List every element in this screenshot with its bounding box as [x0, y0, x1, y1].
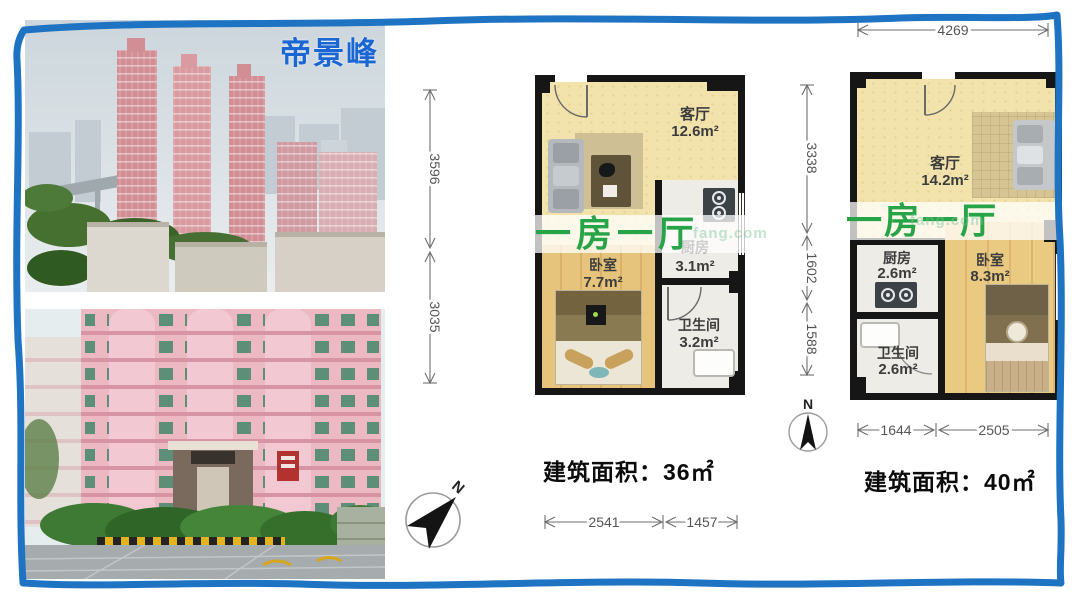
sofa [548, 139, 584, 213]
stove [875, 282, 917, 308]
dim-left-vertical: 3596 3035 [423, 90, 443, 383]
watermark: fang.com [910, 212, 985, 229]
bed [985, 284, 1049, 392]
dim-bottom-large: 1644 2505 [858, 422, 1048, 438]
room-label-living-name: 客厅 [905, 152, 985, 173]
street-photo [25, 309, 385, 579]
dim-3035: 3035 [427, 301, 443, 332]
room-label-bedroom-name: 卧室 [955, 250, 1025, 270]
room-label-kitchen-area: 2.6m² [862, 265, 932, 282]
project-title: 帝景峰 [280, 28, 379, 73]
dim-bottom-small: 2541 1457 [545, 514, 737, 530]
dim-2505: 2505 [978, 422, 1009, 438]
dim-1457: 1457 [686, 514, 717, 530]
north-label: N [803, 396, 813, 412]
living-window [1055, 114, 1062, 182]
watermark: fang.com [693, 225, 768, 242]
room-label-bath-name: 卫生间 [860, 343, 936, 363]
area-label-small: 建筑面积：36㎡ [543, 453, 715, 487]
room-label-living-name: 客厅 [655, 103, 735, 124]
wall-bottom [850, 393, 1062, 400]
compass-north: N [789, 396, 827, 451]
bedroom-window [1055, 254, 1062, 320]
room-label-bedroom-area: 7.7m² [567, 274, 639, 291]
dim-1644: 1644 [880, 422, 911, 438]
dim-4269: 4269 [937, 22, 968, 38]
aerial-photo: 帝景峰 [25, 20, 385, 292]
room-label-living-area: 14.2m² [905, 172, 985, 189]
sofa [1013, 120, 1055, 190]
floorplan-small: 客厅 12.6m² 厨房 3.1m² 卧室 7.7m² 卫生间 3.2m² 一房… [535, 75, 745, 395]
room-label-bedroom-area: 8.3m² [955, 268, 1025, 285]
dim-1588: 1588 [804, 323, 820, 354]
corner-block [707, 75, 745, 91]
wall-chunk [729, 271, 745, 293]
corner-block [1046, 72, 1062, 88]
room-label-kitchen-area: 3.1m² [670, 258, 720, 275]
dim-3338: 3338 [804, 142, 820, 173]
dim-top: 4269 [858, 22, 1048, 38]
dim-middle-vertical: 3338 1602 1588 [800, 85, 820, 375]
street-photo-art [25, 309, 385, 579]
wall-bottom [535, 388, 745, 395]
entry-door-arc [535, 75, 595, 135]
north-label: N [448, 478, 467, 498]
dim-3596: 3596 [427, 153, 443, 184]
entry-door-arc [850, 72, 970, 132]
bed [555, 290, 642, 385]
dim-2541: 2541 [588, 514, 619, 530]
left-building [25, 337, 81, 527]
listing-infographic: 帝景峰 [0, 0, 1080, 601]
coffee-table [591, 155, 631, 207]
area-label-large: 建筑面积：40㎡ [864, 463, 1036, 497]
room-label-living-area: 12.6m² [655, 123, 735, 140]
room-label-bath-area: 3.2m² [665, 334, 733, 351]
floorplan-large: 客厅 14.2m² 厨房 2.6m² 卧室 8.3m² 卫生间 2.6m² 一房… [850, 72, 1062, 400]
room-label-bedroom-name: 卧室 [567, 255, 639, 275]
dim-1602: 1602 [804, 252, 820, 283]
room-label-bath-area: 2.6m² [860, 361, 936, 378]
bathtub [693, 349, 735, 377]
room-label-bath-name: 卫生间 [665, 315, 733, 335]
compass-tilted: N [406, 478, 468, 549]
